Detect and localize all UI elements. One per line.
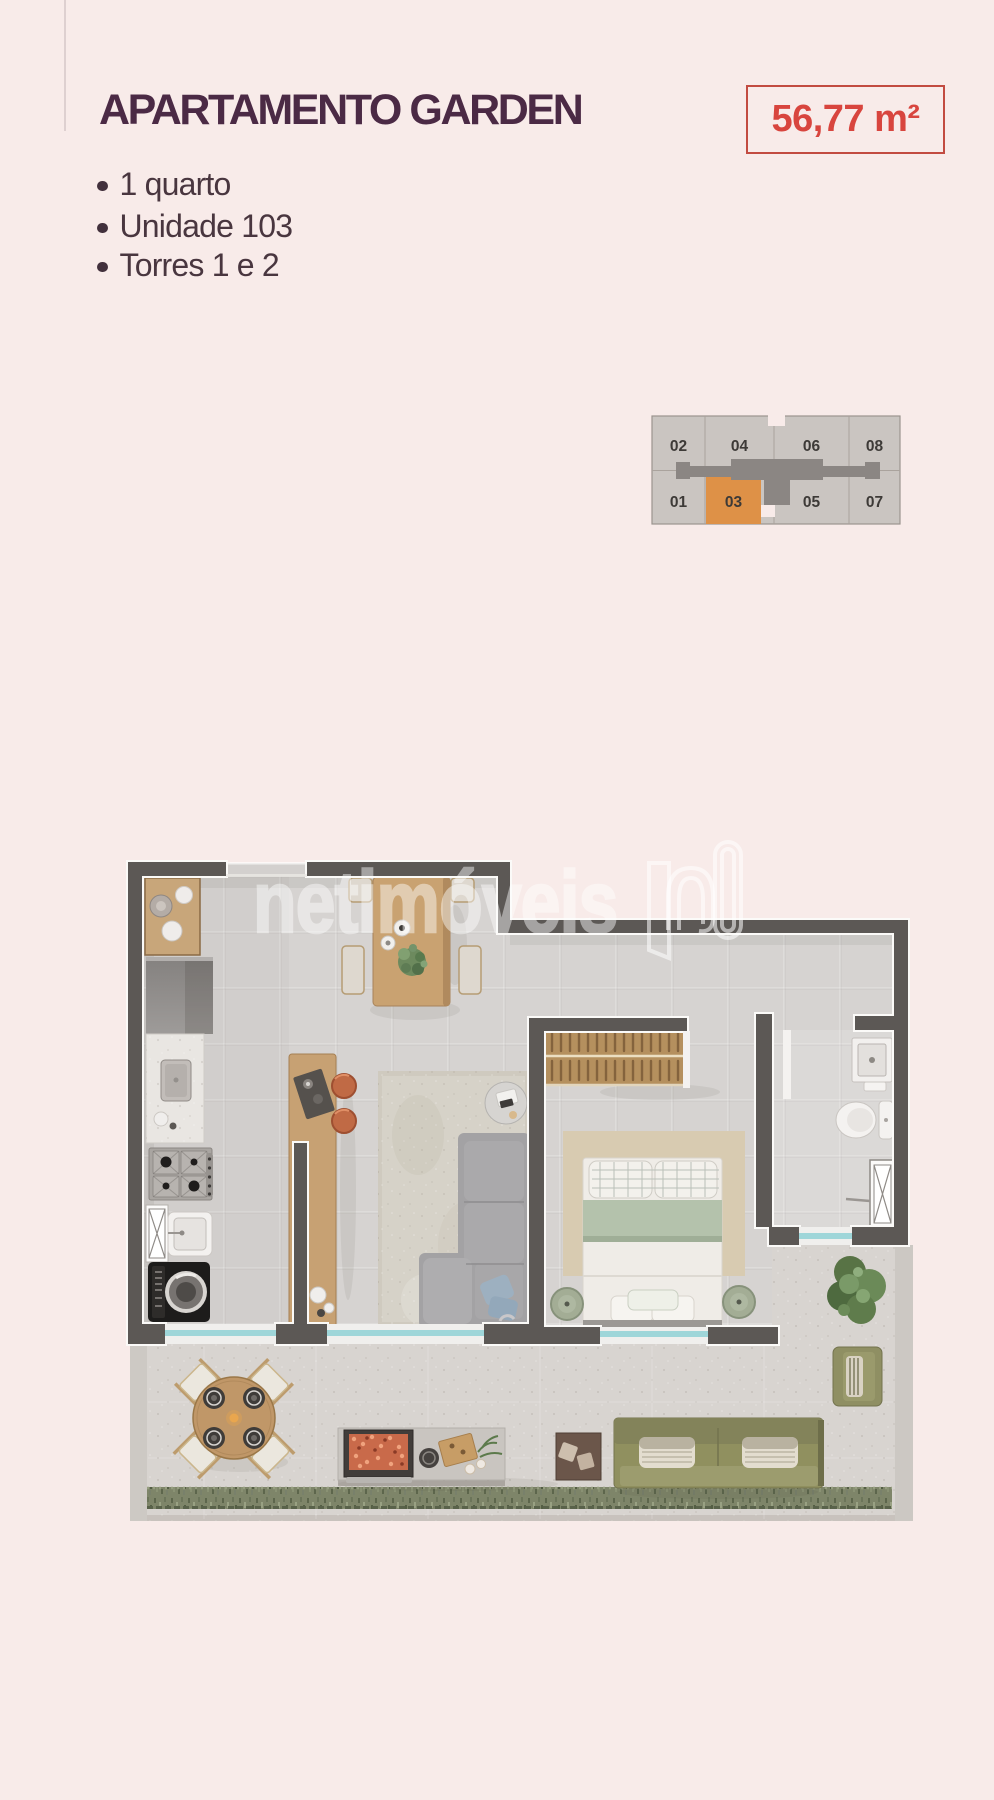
svg-text:05: 05 — [803, 494, 821, 511]
svg-text:01: 01 — [670, 494, 688, 511]
svg-text:06: 06 — [803, 438, 821, 455]
svg-text:netimóveis: netimóveis — [253, 853, 617, 950]
svg-text:08: 08 — [866, 438, 884, 455]
svg-text:03: 03 — [725, 494, 743, 511]
svg-text:04: 04 — [731, 438, 749, 455]
svg-text:07: 07 — [866, 494, 883, 511]
svg-text:02: 02 — [670, 438, 687, 455]
